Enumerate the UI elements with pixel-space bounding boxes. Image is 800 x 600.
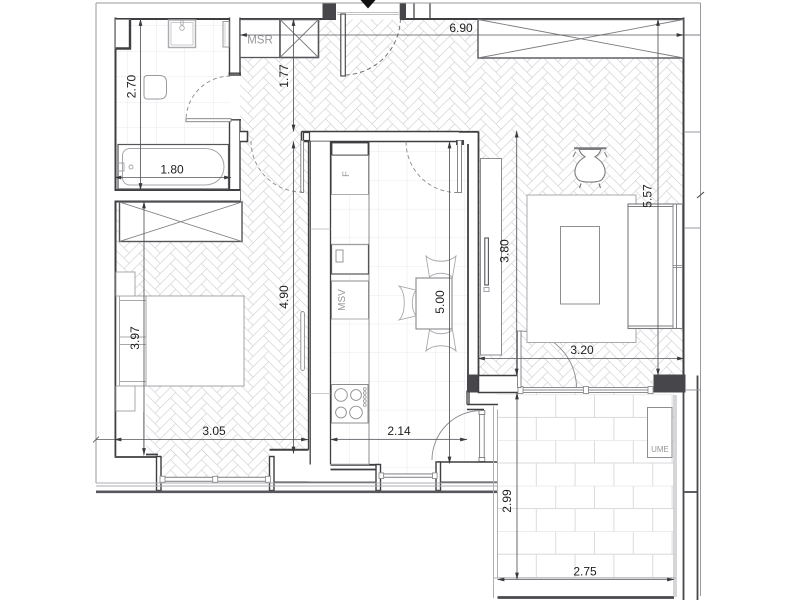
svg-text:3.80: 3.80 — [498, 239, 512, 263]
svg-text:1.77: 1.77 — [277, 64, 291, 88]
svg-text:6.90: 6.90 — [449, 21, 473, 35]
svg-text:4.90: 4.90 — [277, 285, 291, 309]
svg-text:2.75: 2.75 — [573, 565, 597, 579]
svg-text:3.05: 3.05 — [202, 424, 226, 438]
svg-text:1.80: 1.80 — [160, 163, 184, 177]
svg-text:5.00: 5.00 — [433, 290, 447, 314]
svg-text:3.97: 3.97 — [128, 326, 142, 350]
svg-text:F: F — [341, 171, 352, 177]
svg-text:3.20: 3.20 — [570, 343, 594, 357]
svg-text:5.57: 5.57 — [641, 184, 655, 208]
svg-text:2.99: 2.99 — [500, 489, 514, 513]
svg-text:MSR: MSR — [247, 35, 273, 47]
svg-text:UME: UME — [651, 445, 669, 454]
svg-text:2.70: 2.70 — [125, 74, 139, 98]
svg-text:MSV: MSV — [337, 289, 348, 311]
svg-text:2.14: 2.14 — [387, 424, 411, 438]
